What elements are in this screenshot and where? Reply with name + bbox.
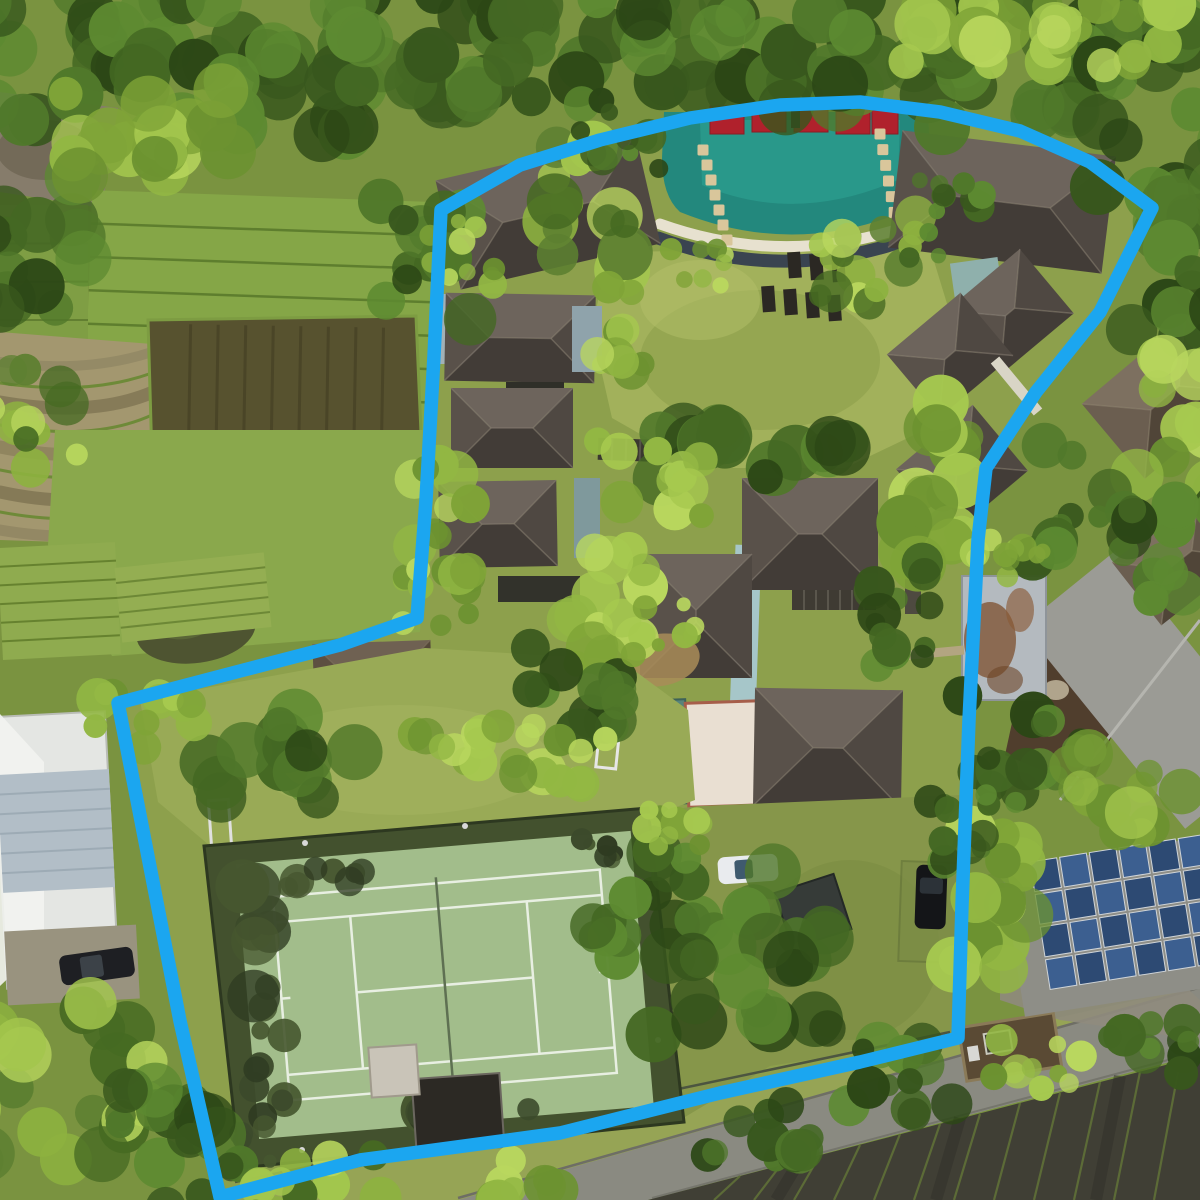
light-post bbox=[462, 823, 468, 829]
aerial-photo bbox=[0, 0, 1200, 1200]
white-shed bbox=[368, 1044, 419, 1097]
aerial-photo-canvas bbox=[0, 0, 1200, 1200]
villa-roof-g bbox=[742, 478, 878, 590]
corner-white-object bbox=[967, 1045, 980, 1062]
sun-lounger bbox=[783, 289, 798, 316]
sun-lounger bbox=[787, 252, 802, 279]
sun-lounger bbox=[761, 286, 776, 313]
garden-rows-lower2 bbox=[114, 552, 271, 642]
solar-panels bbox=[1030, 834, 1200, 989]
light-post bbox=[302, 840, 308, 846]
cream-roof bbox=[685, 701, 765, 808]
rust-patch bbox=[987, 666, 1023, 694]
garden-rows-lower bbox=[0, 542, 121, 660]
villa-roof-i bbox=[753, 688, 903, 809]
rust-patch bbox=[1006, 588, 1034, 632]
